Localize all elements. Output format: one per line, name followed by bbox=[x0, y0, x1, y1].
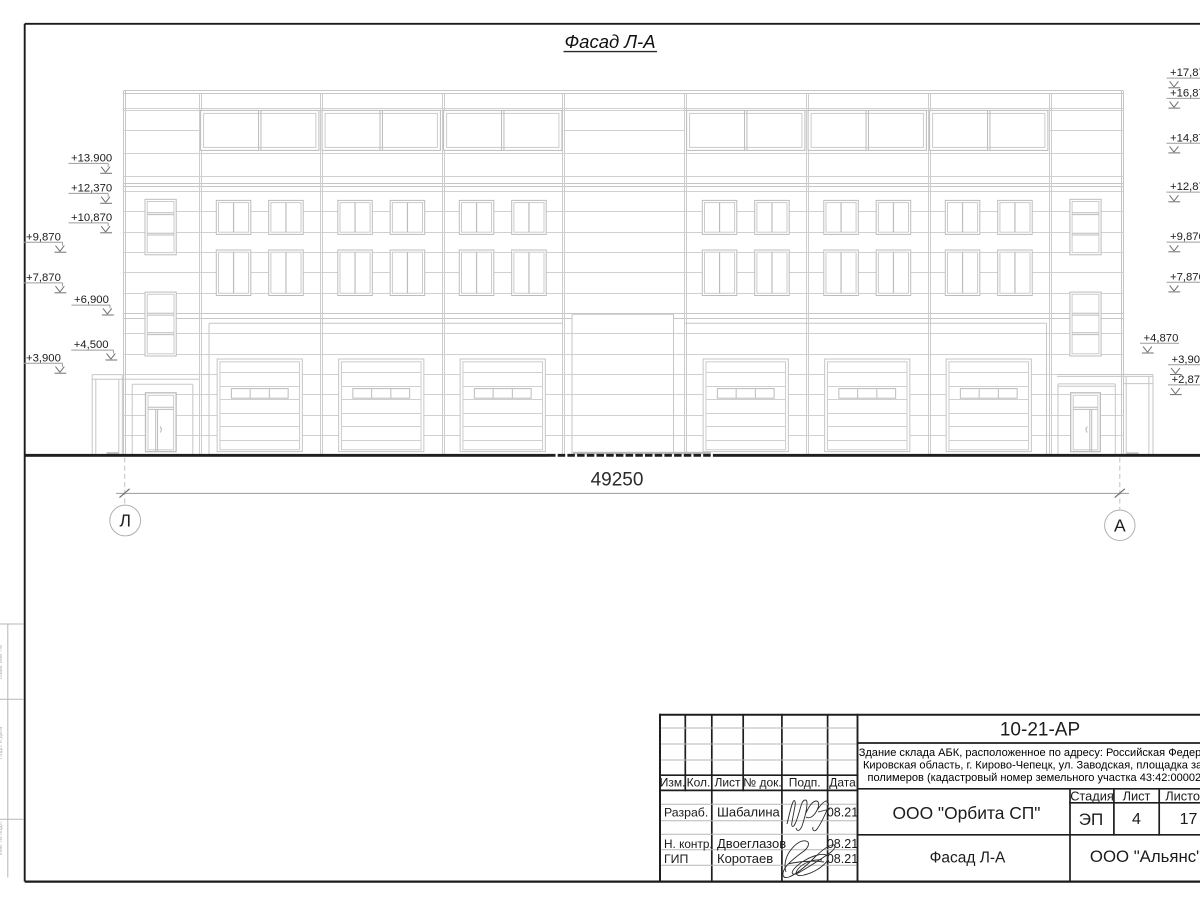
svg-text:+4,870: +4,870 bbox=[1144, 332, 1179, 344]
svg-text:17: 17 bbox=[1180, 811, 1198, 828]
svg-text:ООО "Орбита СП": ООО "Орбита СП" bbox=[893, 803, 1041, 823]
svg-text:+14,870: +14,870 bbox=[1170, 132, 1200, 144]
svg-text:Л: Л bbox=[119, 511, 130, 531]
svg-text:+4,500: +4,500 bbox=[74, 339, 109, 351]
svg-text:08.21: 08.21 bbox=[827, 837, 858, 851]
svg-text:ГИП: ГИП bbox=[664, 852, 688, 866]
svg-text:№ док.: № док. bbox=[743, 776, 781, 790]
svg-text:полимеров (кадастровый номер з: полимеров (кадастровый номер земельного … bbox=[868, 772, 1200, 784]
svg-text:08.21: 08.21 bbox=[827, 852, 858, 866]
svg-text:Подп. и дата: Подп. и дата bbox=[0, 726, 4, 759]
svg-text:Двоеглазов: Двоеглазов bbox=[717, 836, 786, 851]
svg-text:ЭП: ЭП bbox=[1079, 810, 1103, 829]
svg-text:Шабалина: Шабалина bbox=[717, 805, 781, 820]
svg-text:Подп.: Подп. bbox=[789, 776, 821, 790]
svg-text:+16,870: +16,870 bbox=[1170, 88, 1200, 100]
svg-text:+13.900: +13.900 bbox=[71, 153, 112, 165]
svg-text:+10,870: +10,870 bbox=[71, 212, 112, 224]
svg-text:Лист: Лист bbox=[1123, 788, 1151, 803]
svg-text:Изм.: Изм. bbox=[660, 776, 686, 790]
svg-text:10-21-АР: 10-21-АР bbox=[1000, 720, 1080, 741]
svg-text:Инв. № подл.: Инв. № подл. bbox=[0, 820, 4, 855]
svg-text:+3,900: +3,900 bbox=[26, 352, 61, 364]
svg-text:+6,900: +6,900 bbox=[74, 294, 109, 306]
svg-text:Н. контр.: Н. контр. bbox=[664, 837, 713, 851]
svg-text:Кол.: Кол. bbox=[687, 776, 711, 790]
svg-text:+9,870: +9,870 bbox=[1170, 231, 1200, 243]
svg-text:+9,870: +9,870 bbox=[26, 231, 61, 243]
svg-text:+12,870: +12,870 bbox=[1170, 181, 1200, 193]
svg-text:+2,870: +2,870 bbox=[1172, 374, 1200, 386]
svg-text:08.21: 08.21 bbox=[827, 806, 858, 820]
svg-text:Кировская область, г. Кирово-Ч: Кировская область, г. Кирово-Чепецк, ул.… bbox=[863, 759, 1200, 771]
svg-text:Разраб.: Разраб. bbox=[664, 806, 708, 820]
svg-text:+17,870: +17,870 bbox=[1170, 67, 1200, 79]
svg-text:49250: 49250 bbox=[591, 470, 644, 491]
svg-text:Взам. инв. №: Взам. инв. № bbox=[0, 645, 4, 679]
svg-text:+7,870: +7,870 bbox=[1170, 271, 1200, 283]
svg-text:А: А bbox=[1114, 515, 1126, 535]
svg-text:Фасад Л-А: Фасад Л-А bbox=[564, 31, 655, 52]
svg-text:+7,870: +7,870 bbox=[26, 272, 61, 284]
svg-text:ООО "Альянс": ООО "Альянс" bbox=[1090, 847, 1200, 866]
svg-text:Здание склада АБК, расположенн: Здание склада АБК, расположенное по адре… bbox=[859, 747, 1200, 759]
svg-text:+3,900: +3,900 bbox=[1172, 354, 1200, 366]
svg-text:+12,370: +12,370 bbox=[71, 183, 112, 195]
svg-text:Листов: Листов bbox=[1165, 788, 1200, 803]
svg-text:4: 4 bbox=[1132, 811, 1141, 828]
svg-text:Коротаев: Коротаев bbox=[717, 851, 773, 866]
svg-text:Лист: Лист bbox=[714, 776, 741, 790]
svg-text:Фасад Л-А: Фасад Л-А bbox=[930, 850, 1006, 867]
svg-text:Дата: Дата bbox=[829, 776, 856, 790]
svg-text:Стадия: Стадия bbox=[1070, 788, 1114, 803]
